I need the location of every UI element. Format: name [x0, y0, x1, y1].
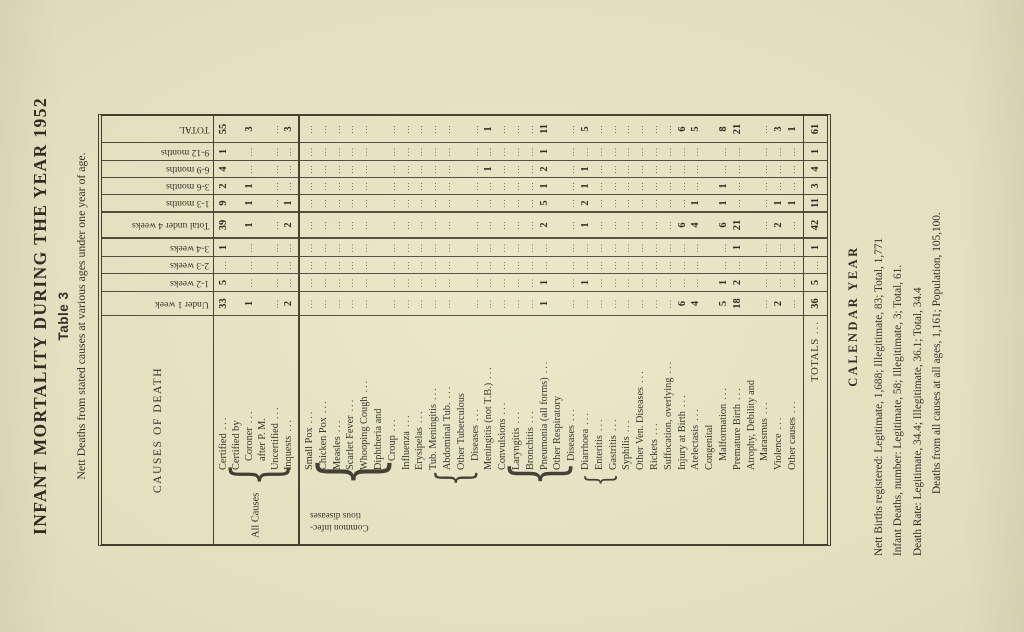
empty-cell-dots: ...	[524, 243, 538, 252]
data-column: 1.........	[214, 239, 298, 257]
cell-value: 4	[689, 301, 703, 306]
cause-label-line: Other Respiratory	[551, 318, 565, 470]
empty-cell-dots: ...	[400, 260, 414, 269]
empty-cell-dots: ...	[303, 260, 317, 269]
empty-cell-dots: ...	[243, 147, 256, 156]
group-brace: {	[496, 478, 579, 486]
empty-cell-dots: ...	[331, 198, 345, 207]
empty-cell-dots: ...	[634, 124, 648, 133]
empty-cell-dots: ...	[441, 124, 455, 133]
footer-line-infant-deaths: Infant Deaths, number: Legitimate, 58; I…	[889, 0, 909, 556]
totals-label-cell: TOTALS...	[804, 316, 827, 544]
empty-cell-dots: ...	[243, 260, 256, 269]
empty-cell-dots: ...	[758, 124, 772, 133]
totals-cell: 5	[804, 274, 827, 292]
empty-cell-dots: ...	[524, 198, 538, 207]
empty-cell-dots: ...	[607, 260, 621, 269]
cause-label-line: Abdominal Tub....	[441, 318, 455, 470]
empty-cell-dots: ...	[427, 260, 441, 269]
empty-cell-dots: ...	[758, 278, 772, 287]
empty-cell-dots: ...	[400, 181, 414, 190]
data-column: 1.........	[214, 143, 298, 161]
empty-cell-dots: ...	[282, 181, 295, 190]
cause-label-line: Marasmus...	[758, 318, 772, 470]
cause-label-line: Diarrhoea...	[579, 318, 593, 470]
empty-cell-dots: ...	[676, 181, 690, 190]
empty-cell-dots: ...	[344, 260, 358, 269]
empty-cell-dots: ...	[717, 243, 731, 252]
cell-value: 6	[676, 222, 690, 227]
empty-cell-dots: ...	[676, 278, 690, 287]
empty-cell-dots: ...	[648, 299, 662, 308]
masthead: INFANT MORTALITY DURING THE YEAR 1952 Ta…	[0, 0, 89, 632]
empty-cell-dots: ...	[427, 198, 441, 207]
cell-value: 1	[810, 245, 821, 250]
group-label-line: Common infec-	[310, 522, 369, 531]
empty-cell-dots: ...	[317, 124, 331, 133]
empty-cell-dots: ...	[662, 164, 676, 173]
empty-cell-dots: ...	[565, 198, 579, 207]
empty-cell-dots: ...	[620, 243, 634, 252]
totals-cell: 36	[804, 292, 827, 316]
empty-cell-dots: ...	[469, 299, 483, 308]
cell-value: 21	[731, 124, 745, 134]
empty-cell-dots: ...	[510, 198, 524, 207]
cell-value: 1	[731, 245, 745, 250]
cause-label-line: Suffocation, overlying...	[662, 318, 676, 470]
empty-cell-dots: ...	[524, 164, 538, 173]
empty-cell-dots: ...	[607, 164, 621, 173]
cause-label-line: Enteritis...	[593, 318, 607, 470]
cell-value: 2	[538, 222, 552, 227]
totals-cell: 3	[804, 178, 827, 195]
empty-cell-dots: ...	[413, 164, 427, 173]
cell-value: 61	[810, 124, 821, 134]
data-column: ........................................…	[300, 178, 803, 195]
empty-cell-dots: ...	[427, 147, 441, 156]
empty-cell-dots: ...	[331, 220, 345, 229]
empty-cell-dots: ...	[469, 278, 483, 287]
cause-label-line: Scarlet Fever...	[344, 318, 358, 470]
empty-cell-dots: ...	[469, 198, 483, 207]
data-column: .................................1......…	[300, 116, 803, 143]
empty-cell-dots: ...	[331, 278, 345, 287]
empty-cell-dots: ...	[772, 260, 786, 269]
cell-value: 1	[243, 200, 256, 205]
empty-cell-dots: ...	[303, 243, 317, 252]
cell-value: 6	[676, 126, 690, 131]
empty-cell-dots: ...	[344, 164, 358, 173]
column-header: 3-6 months	[102, 178, 213, 195]
cause-label-line: Premature Birth...	[731, 318, 745, 470]
empty-cell-dots: ...	[758, 299, 772, 308]
empty-cell-dots: ...	[344, 198, 358, 207]
table-header-row: CAUSES OF DEATHUnder 1 week1-2 weeks2-3 …	[102, 116, 214, 544]
empty-cell-dots: ...	[413, 299, 427, 308]
empty-cell-dots: ...	[565, 124, 579, 133]
cell-value: 11	[538, 124, 552, 134]
empty-cell-dots: ...	[662, 260, 676, 269]
totals-cell: 61	[804, 116, 827, 143]
empty-cell-dots: ...	[676, 260, 690, 269]
certification-label-line: Certified...	[217, 318, 230, 470]
empty-cell-dots: ...	[620, 260, 634, 269]
cell-value: 1	[717, 280, 731, 285]
cell-value: 6	[676, 301, 690, 306]
empty-cell-dots: ...	[758, 198, 772, 207]
data-column: 21......	[214, 178, 298, 195]
empty-cell-dots: ...	[648, 124, 662, 133]
empty-cell-dots: ...	[717, 164, 731, 173]
data-column: ........................................…	[300, 213, 803, 239]
empty-cell-dots: ...	[269, 299, 282, 308]
empty-cell-dots: ...	[386, 278, 400, 287]
empty-cell-dots: ...	[772, 164, 786, 173]
cell-value: 1	[282, 200, 295, 205]
empty-cell-dots: ...	[303, 278, 317, 287]
column-header-label: TOTAL	[179, 124, 210, 135]
empty-cell-dots: ...	[400, 243, 414, 252]
empty-cell-dots: ...	[758, 164, 772, 173]
empty-cell-dots: ...	[607, 220, 621, 229]
data-column: ........................................…	[300, 239, 803, 257]
empty-cell-dots: ...	[510, 181, 524, 190]
cause-label-line: Malformation...	[717, 318, 731, 470]
empty-cell-dots: ...	[731, 181, 745, 190]
empty-cell-dots: ...	[344, 181, 358, 190]
empty-cell-dots: ...	[676, 164, 690, 173]
empty-cell-dots: ...	[400, 147, 414, 156]
empty-cell-dots: ...	[317, 164, 331, 173]
cell-value: 55	[217, 124, 230, 134]
cell-value: 4	[217, 166, 230, 171]
certification-label-line: after P. M.	[256, 318, 269, 470]
empty-cell-dots: ...	[386, 243, 400, 252]
empty-cell-dots: ...	[510, 164, 524, 173]
column-header: 2-3 weeks	[102, 257, 213, 274]
empty-cell-dots: ...	[303, 164, 317, 173]
cause-label-line: Diphtheria and	[372, 318, 386, 470]
cause-label-line: Diseases...	[469, 318, 483, 470]
empty-cell-dots: ...	[648, 220, 662, 229]
empty-cell-dots: ...	[565, 299, 579, 308]
cause-label-line: Bronchitis...	[524, 318, 538, 470]
empty-cell-dots: ...	[469, 220, 483, 229]
causes-header-cell: CAUSES OF DEATH	[102, 316, 213, 544]
empty-cell-dots: ...	[358, 124, 372, 133]
empty-cell-dots: ...	[634, 164, 648, 173]
cell-value: 1	[538, 183, 552, 188]
empty-cell-dots: ...	[538, 260, 552, 269]
empty-cell-dots: ...	[565, 220, 579, 229]
empty-cell-dots: ...	[441, 260, 455, 269]
empty-cell-dots: ...	[269, 243, 282, 252]
empty-cell-dots: ...	[427, 181, 441, 190]
empty-cell-dots: ...	[662, 181, 676, 190]
empty-cell-dots: ...	[662, 220, 676, 229]
data-column: 5.........	[214, 274, 298, 292]
empty-cell-dots: ...	[607, 147, 621, 156]
empty-cell-dots: ...	[620, 220, 634, 229]
empty-cell-dots: ...	[510, 243, 524, 252]
cell-value: 1	[243, 222, 256, 227]
empty-cell-dots: ...	[689, 260, 703, 269]
cause-label-line: Chicken Pox...	[317, 318, 331, 470]
empty-cell-dots: ...	[758, 147, 772, 156]
empty-cell-dots: ...	[243, 278, 256, 287]
footer-line-death-rate: Death Rate: Legitimate, 34.4; Illegitima…	[909, 0, 929, 556]
empty-cell-dots: ...	[269, 220, 282, 229]
empty-cell-dots: ...	[269, 278, 282, 287]
data-column: 331...2	[214, 292, 298, 316]
empty-cell-dots: ...	[317, 260, 331, 269]
column-header-label: 3-4 weeks	[170, 242, 209, 253]
column-header: TOTAL	[102, 116, 213, 143]
cell-value: 1	[538, 280, 552, 285]
empty-cell-dots: ...	[469, 243, 483, 252]
empty-cell-dots: ...	[303, 198, 317, 207]
cell-value: 2	[772, 222, 786, 227]
empty-cell-dots: ...	[358, 299, 372, 308]
empty-cell-dots: ...	[282, 278, 295, 287]
empty-cell-dots: ...	[648, 278, 662, 287]
empty-cell-dots: ...	[510, 278, 524, 287]
empty-cell-dots: ...	[482, 198, 496, 207]
cause-label-line: Rickets...	[648, 318, 662, 470]
empty-cell-dots: ...	[317, 147, 331, 156]
empty-cell-dots: ...	[469, 164, 483, 173]
cell-value: 33	[217, 298, 230, 308]
cause-label-line: Whooping Cough...	[358, 318, 372, 470]
empty-cell-dots: ...	[469, 124, 483, 133]
all-causes-section: All Causes{Certified...Certified byCoron…	[214, 116, 300, 544]
empty-cell-dots: ...	[524, 124, 538, 133]
totals-cell: 11	[804, 195, 827, 213]
column-header-label: 9-12 months	[161, 146, 209, 157]
empty-cell-dots: ...	[717, 260, 731, 269]
all-causes-label-cell: All Causes{Certified...Certified byCoron…	[214, 316, 298, 544]
totals-cell: 4	[804, 161, 827, 178]
empty-cell-dots: ...	[565, 243, 579, 252]
cell-value: 36	[810, 298, 821, 308]
totals-row: TOTALS...365...1421134161	[803, 116, 827, 544]
empty-cell-dots: ...	[482, 260, 496, 269]
empty-cell-dots: ...	[689, 278, 703, 287]
cause-label-line: Croup...	[386, 318, 400, 470]
empty-cell-dots: ...	[565, 181, 579, 190]
cell-value: 3	[810, 183, 821, 188]
empty-cell-dots: ...	[731, 147, 745, 156]
empty-cell-dots: ...	[620, 181, 634, 190]
cell-value: 1	[810, 149, 821, 154]
cell-value: 5	[689, 126, 703, 131]
empty-cell-dots: ...	[386, 299, 400, 308]
empty-cell-dots: ...	[358, 220, 372, 229]
empty-cell-dots: ...	[303, 299, 317, 308]
cell-value: 1	[579, 222, 593, 227]
empty-cell-dots: ...	[269, 124, 282, 133]
cause-label-line: Small Pox...	[303, 318, 317, 470]
empty-cell-dots: ...	[344, 124, 358, 133]
empty-cell-dots: ...	[593, 198, 607, 207]
cell-value: 1	[786, 200, 800, 205]
cell-value: 2	[579, 200, 593, 205]
data-column: 553...3	[214, 116, 298, 143]
cause-label-line: Other Tuberculous	[455, 318, 469, 470]
column-header: 1-2 weeks	[102, 274, 213, 292]
empty-cell-dots: ...	[269, 181, 282, 190]
empty-cell-dots: ...	[786, 299, 800, 308]
certification-label-line: Inquests...	[282, 318, 295, 470]
empty-cell-dots: ...	[400, 220, 414, 229]
empty-cell-dots: ...	[303, 181, 317, 190]
cell-value: 1	[579, 166, 593, 171]
cell-value: 42	[810, 220, 821, 230]
empty-cell-dots: ...	[317, 198, 331, 207]
empty-cell-dots: ...	[510, 220, 524, 229]
empty-cell-dots: ...	[607, 299, 621, 308]
data-column: 391...2	[214, 213, 298, 239]
cell-value: 1	[538, 301, 552, 306]
empty-cell-dots: ...	[317, 243, 331, 252]
empty-cell-dots: ...	[676, 147, 690, 156]
cell-value: 1	[689, 200, 703, 205]
empty-cell-dots: ...	[303, 220, 317, 229]
empty-cell-dots: ...	[441, 243, 455, 252]
empty-cell-dots: ...	[400, 198, 414, 207]
empty-cell-dots: ...	[358, 198, 372, 207]
data-column: 4.........	[214, 161, 298, 178]
empty-cell-dots: ...	[496, 220, 510, 229]
empty-cell-dots: ...	[496, 260, 510, 269]
empty-cell-dots: ...	[565, 164, 579, 173]
empty-cell-dots: ...	[331, 243, 345, 252]
empty-cell-dots: ...	[496, 147, 510, 156]
empty-cell-dots: ...	[524, 299, 538, 308]
empty-cell-dots: ...	[469, 260, 483, 269]
empty-cell-dots: ...	[786, 181, 800, 190]
empty-cell-dots: ...	[344, 299, 358, 308]
empty-cell-dots: ...	[620, 147, 634, 156]
column-header: Under 1 week	[102, 292, 213, 316]
empty-cell-dots: ...	[524, 147, 538, 156]
cause-label-line: Other causes...	[786, 318, 800, 470]
empty-cell-dots: ...	[482, 181, 496, 190]
empty-cell-dots: ...	[634, 299, 648, 308]
empty-cell-dots: ...	[786, 278, 800, 287]
cause-label-line: Congenital	[703, 318, 717, 470]
footer-line-all-deaths: Deaths from all causes at all ages, 1,16…	[928, 0, 948, 556]
cell-value: 1	[579, 280, 593, 285]
empty-cell-dots: ...	[386, 198, 400, 207]
empty-cell-dots: ...	[427, 164, 441, 173]
empty-cell-dots: ...	[593, 220, 607, 229]
empty-cell-dots: ...	[496, 299, 510, 308]
data-column: ........................................…	[300, 292, 803, 316]
empty-cell-dots: ...	[648, 260, 662, 269]
column-header: Total under 4 weeks	[102, 213, 213, 239]
common-infectious-group-label: Common infec-tious diseases	[306, 501, 402, 535]
empty-cell-dots: ...	[441, 164, 455, 173]
column-header-label: Total under 4 weeks	[132, 220, 209, 231]
group-brace: {	[427, 478, 482, 486]
empty-cell-dots: ...	[648, 181, 662, 190]
empty-cell-dots: ...	[427, 278, 441, 287]
empty-cell-dots: ...	[634, 198, 648, 207]
cell-value: 2	[282, 222, 295, 227]
cell-value: 1	[717, 183, 731, 188]
cell-value: 4	[689, 222, 703, 227]
empty-cell-dots: ...	[243, 243, 256, 252]
empty-cell-dots: ...	[689, 243, 703, 252]
empty-cell-dots: ...	[731, 198, 745, 207]
empty-cell-dots: ...	[482, 220, 496, 229]
empty-cell-dots: ...	[634, 243, 648, 252]
empty-cell-dots: ...	[386, 220, 400, 229]
cause-label-line: Atrophy, Debility and	[745, 318, 759, 470]
cause-label-line: Gastritis...	[607, 318, 621, 470]
footer-heading: CALENDAR YEAR	[846, 0, 861, 632]
column-header-label: 1-3 months	[166, 198, 209, 209]
empty-cell-dots: ...	[413, 124, 427, 133]
empty-cell-dots: ...	[731, 164, 745, 173]
empty-cell-dots: ...	[331, 299, 345, 308]
data-column: ........................................…	[300, 143, 803, 161]
cause-label-line: Meningitis (not T.B.)...	[482, 318, 496, 470]
empty-cell-dots: ...	[496, 198, 510, 207]
empty-cell-dots: ...	[662, 198, 676, 207]
empty-cell-dots: ...	[634, 260, 648, 269]
empty-cell-dots: ...	[593, 164, 607, 173]
empty-cell-dots: ...	[496, 243, 510, 252]
group-label-line: tious diseases	[310, 510, 361, 519]
empty-cell-dots: ...	[607, 278, 621, 287]
empty-cell-dots: ...	[269, 260, 282, 269]
empty-cell-dots: ...	[441, 147, 455, 156]
cell-value: 1	[538, 149, 552, 154]
empty-cell-dots: ...	[538, 243, 552, 252]
empty-cell-dots: ...	[593, 260, 607, 269]
empty-cell-dots: ...	[427, 220, 441, 229]
empty-cell-dots: ...	[510, 260, 524, 269]
data-column: ........................................…	[300, 274, 803, 292]
empty-cell-dots: ...	[620, 164, 634, 173]
empty-cell-dots: ...	[689, 147, 703, 156]
cause-label-line: Syphilis...	[620, 318, 634, 470]
empty-cell-dots: ...	[269, 147, 282, 156]
totals-label: TOTALS...	[809, 320, 821, 382]
cause-label-line: Diseases...	[565, 318, 579, 470]
empty-cell-dots: ...	[344, 147, 358, 156]
totals-cell: ...	[804, 257, 827, 274]
empty-cell-dots: ...	[565, 260, 579, 269]
empty-cell-dots: ...	[607, 198, 621, 207]
cause-label-line: Laryngitis...	[510, 318, 524, 470]
empty-cell-dots: ...	[441, 181, 455, 190]
empty-cell-dots: ...	[758, 181, 772, 190]
cell-value: 1	[482, 166, 496, 171]
empty-cell-dots: ...	[331, 147, 345, 156]
empty-cell-dots: ...	[607, 243, 621, 252]
empty-cell-dots: ...	[786, 220, 800, 229]
empty-cell-dots: ...	[662, 147, 676, 156]
empty-cell-dots: ...	[427, 243, 441, 252]
empty-cell-dots: ...	[331, 124, 345, 133]
empty-cell-dots: ...	[269, 164, 282, 173]
group-brace: {	[579, 478, 620, 486]
empty-cell-dots: ...	[662, 299, 676, 308]
empty-cell-dots: ...	[510, 147, 524, 156]
